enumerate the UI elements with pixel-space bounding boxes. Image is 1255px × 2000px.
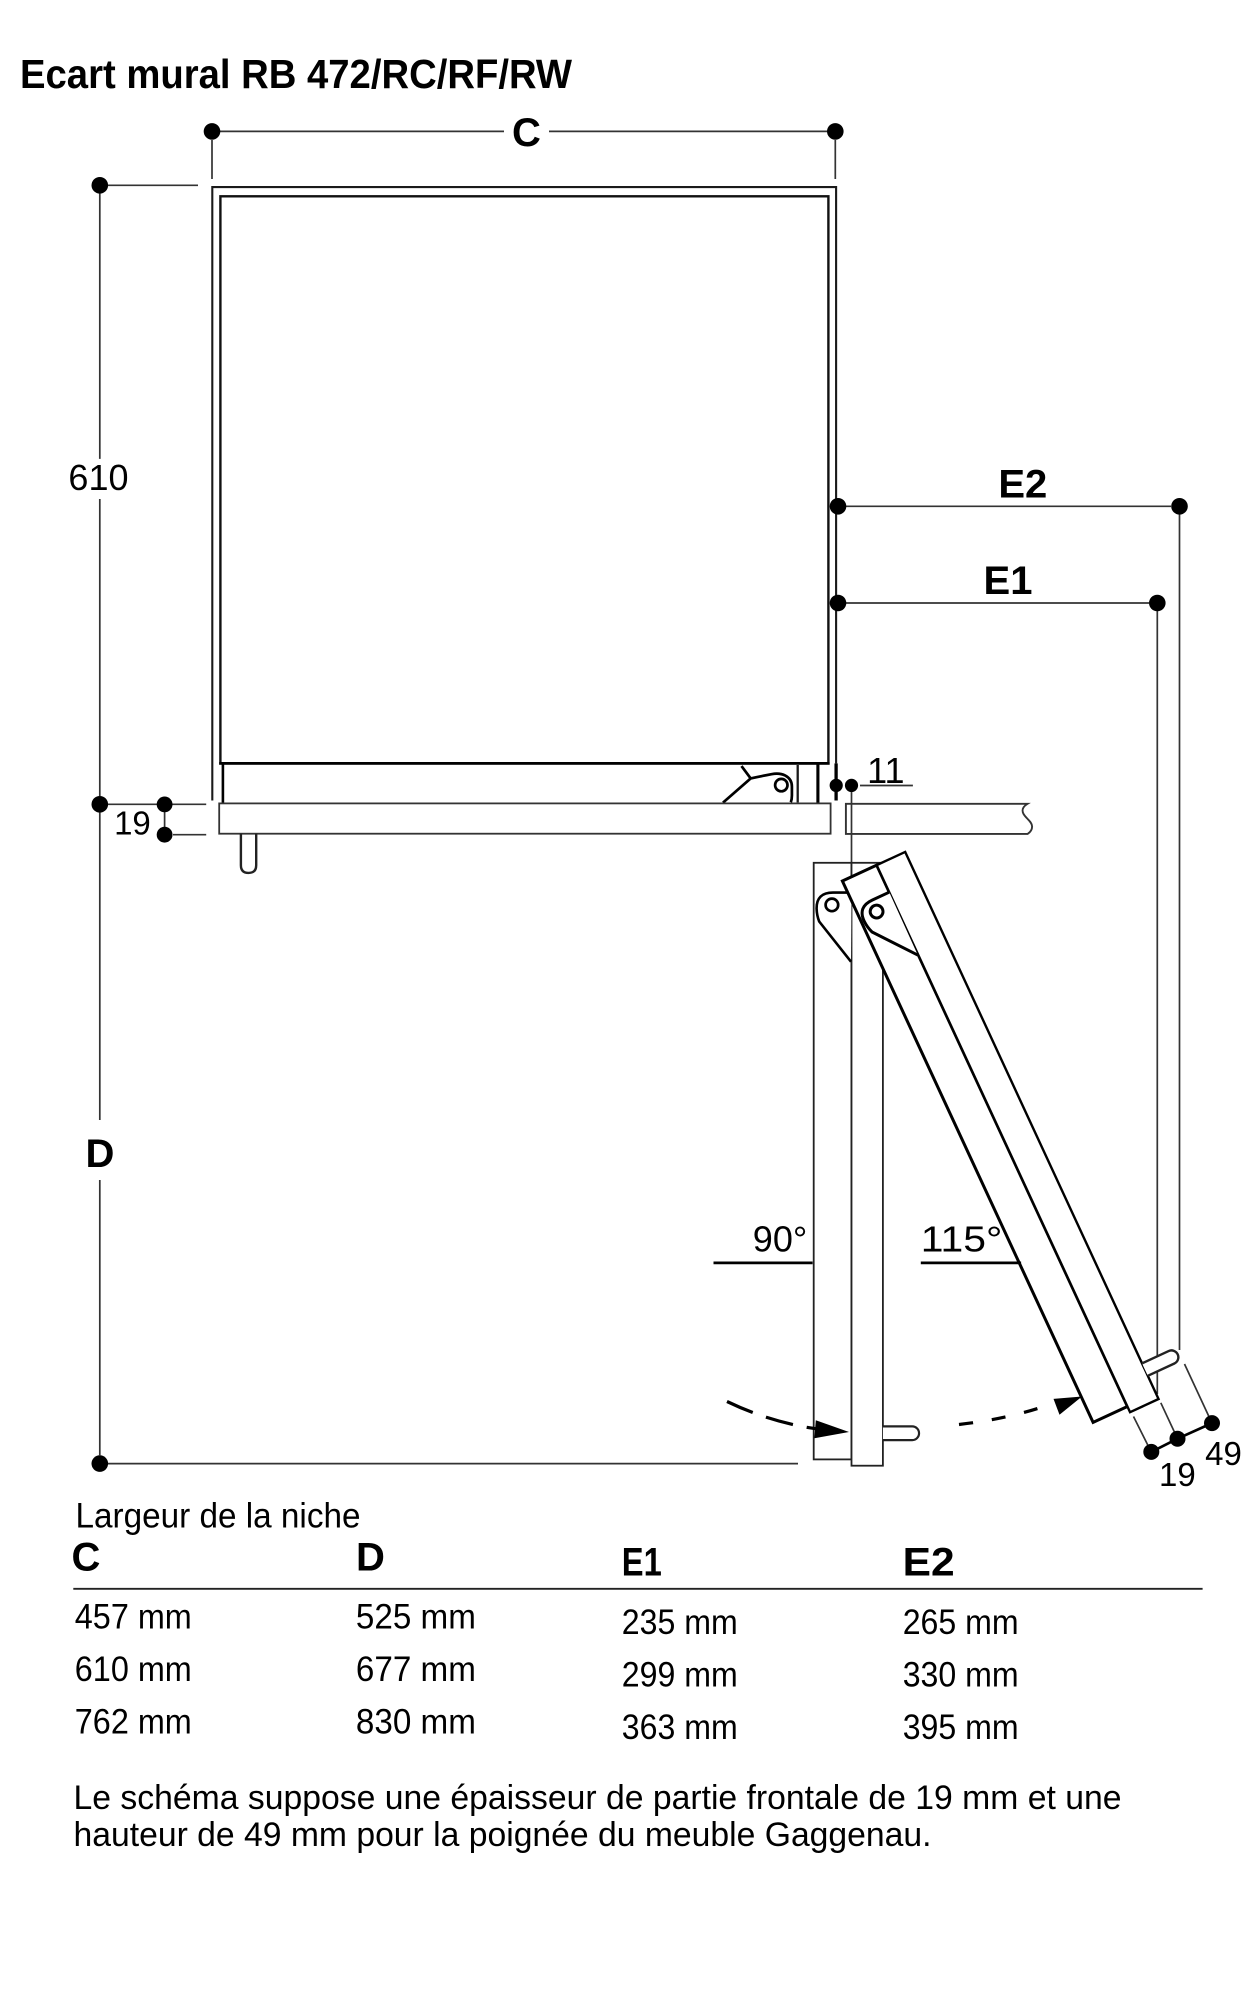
svg-text:D: D bbox=[356, 1536, 385, 1580]
svg-text:49: 49 bbox=[1205, 1435, 1242, 1472]
svg-text:E1: E1 bbox=[984, 559, 1033, 603]
svg-text:19: 19 bbox=[114, 804, 151, 841]
svg-text:235 mm: 235 mm bbox=[622, 1602, 738, 1642]
svg-text:457 mm: 457 mm bbox=[75, 1597, 192, 1637]
svg-text:Ecart mural RB 472/RC/RF/RW: Ecart mural RB 472/RC/RF/RW bbox=[20, 51, 572, 97]
svg-text:299 mm: 299 mm bbox=[622, 1655, 738, 1695]
svg-text:19: 19 bbox=[1159, 1456, 1196, 1493]
svg-text:677 mm: 677 mm bbox=[356, 1649, 476, 1689]
svg-text:115°: 115° bbox=[921, 1219, 1003, 1260]
svg-text:330 mm: 330 mm bbox=[903, 1655, 1019, 1695]
svg-text:762 mm: 762 mm bbox=[75, 1701, 192, 1741]
svg-text:Le schéma suppose une épaisseu: Le schéma suppose une épaisseur de parti… bbox=[74, 1779, 1122, 1817]
svg-text:610: 610 bbox=[68, 457, 128, 498]
svg-text:90°: 90° bbox=[753, 1219, 808, 1260]
svg-text:E2: E2 bbox=[998, 463, 1047, 507]
svg-text:Largeur de la niche: Largeur de la niche bbox=[76, 1497, 361, 1536]
svg-text:E1: E1 bbox=[622, 1541, 662, 1585]
svg-text:830 mm: 830 mm bbox=[356, 1701, 476, 1741]
svg-text:11: 11 bbox=[867, 750, 904, 791]
svg-text:hauteur de 49 mm pour la poign: hauteur de 49 mm pour la poignée du meub… bbox=[74, 1816, 932, 1854]
svg-text:265 mm: 265 mm bbox=[903, 1602, 1019, 1642]
svg-text:C: C bbox=[72, 1536, 101, 1580]
svg-text:363 mm: 363 mm bbox=[622, 1707, 738, 1747]
svg-text:395 mm: 395 mm bbox=[903, 1707, 1019, 1747]
svg-text:610 mm: 610 mm bbox=[75, 1649, 192, 1689]
svg-text:C: C bbox=[512, 111, 541, 155]
svg-text:D: D bbox=[86, 1132, 115, 1176]
svg-text:525 mm: 525 mm bbox=[356, 1597, 476, 1637]
svg-text:E2: E2 bbox=[903, 1541, 955, 1585]
